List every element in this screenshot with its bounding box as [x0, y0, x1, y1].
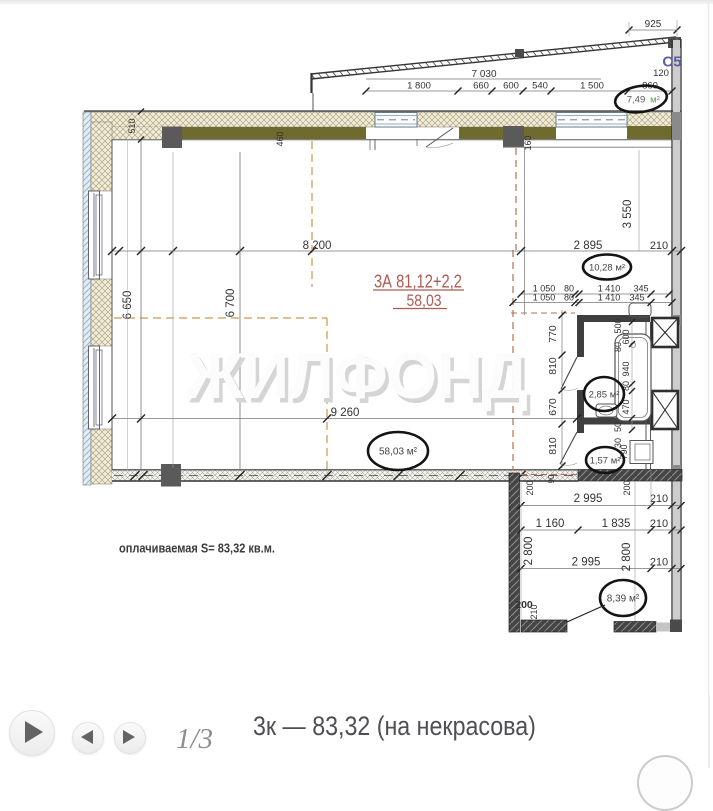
svg-text:540: 540: [532, 81, 548, 92]
svg-text:10,28 м²: 10,28 м²: [589, 263, 625, 274]
svg-text:460: 460: [275, 131, 285, 146]
svg-text:1 500: 1 500: [580, 81, 604, 92]
svg-text:940: 940: [621, 361, 631, 376]
svg-text:6 650: 6 650: [122, 291, 134, 320]
svg-text:1 050: 1 050: [533, 293, 556, 303]
svg-text:8 200: 8 200: [303, 240, 332, 252]
svg-text:770: 770: [547, 325, 559, 343]
svg-text:1 800: 1 800: [407, 81, 431, 92]
svg-text:8,39 м²: 8,39 м²: [607, 594, 640, 605]
svg-text:1,57 м²: 1,57 м²: [590, 456, 621, 467]
svg-text:210: 210: [650, 518, 668, 530]
svg-text:345: 345: [629, 293, 644, 303]
svg-text:1 835: 1 835: [602, 518, 631, 530]
svg-text:ЖИЛФОНД: ЖИЛФОНД: [185, 339, 528, 412]
svg-text:810: 810: [547, 357, 559, 375]
svg-text:7 030: 7 030: [471, 69, 496, 80]
svg-text:м²: м²: [650, 95, 660, 106]
svg-text:80: 80: [564, 293, 574, 303]
svg-text:1 160: 1 160: [536, 518, 565, 530]
svg-text:90: 90: [547, 474, 556, 483]
svg-text:2 995: 2 995: [574, 493, 603, 505]
svg-text:210: 210: [650, 557, 668, 569]
svg-text:2 995: 2 995: [572, 557, 601, 569]
svg-text:2 800: 2 800: [621, 543, 633, 572]
svg-text:670: 670: [547, 398, 559, 416]
svg-text:810: 810: [547, 437, 559, 455]
svg-text:2 895: 2 895: [574, 240, 603, 252]
svg-text:3 550: 3 550: [622, 200, 634, 229]
svg-text:80: 80: [613, 342, 623, 352]
svg-text:6 700: 6 700: [225, 289, 237, 318]
svg-text:500: 500: [613, 318, 623, 333]
svg-text:2,85 м²: 2,85 м²: [589, 390, 620, 401]
svg-text:200: 200: [525, 480, 535, 495]
svg-text:925: 925: [645, 19, 662, 30]
svg-text:7,49: 7,49: [627, 95, 646, 106]
svg-text:160: 160: [523, 135, 533, 150]
svg-text:210: 210: [650, 493, 668, 505]
svg-text:510: 510: [127, 118, 137, 133]
svg-text:1 410: 1 410: [598, 293, 621, 303]
svg-text:660: 660: [473, 81, 489, 92]
svg-text:200: 200: [622, 480, 632, 495]
svg-text:58,03 м²: 58,03 м²: [379, 447, 418, 458]
svg-text:3А 81,12+2,2: 3А 81,12+2,2: [374, 272, 462, 292]
svg-text:50: 50: [613, 422, 623, 432]
svg-text:оплачиваемая S= 83,32 кв.м.: оплачиваемая S= 83,32 кв.м.: [119, 541, 275, 556]
svg-text:600: 600: [503, 81, 519, 92]
svg-text:С5: С5: [662, 54, 681, 71]
svg-text:210: 210: [529, 604, 539, 619]
svg-text:2 800: 2 800: [523, 537, 535, 566]
svg-text:210: 210: [650, 240, 668, 252]
svg-text:58,03: 58,03: [407, 291, 442, 310]
